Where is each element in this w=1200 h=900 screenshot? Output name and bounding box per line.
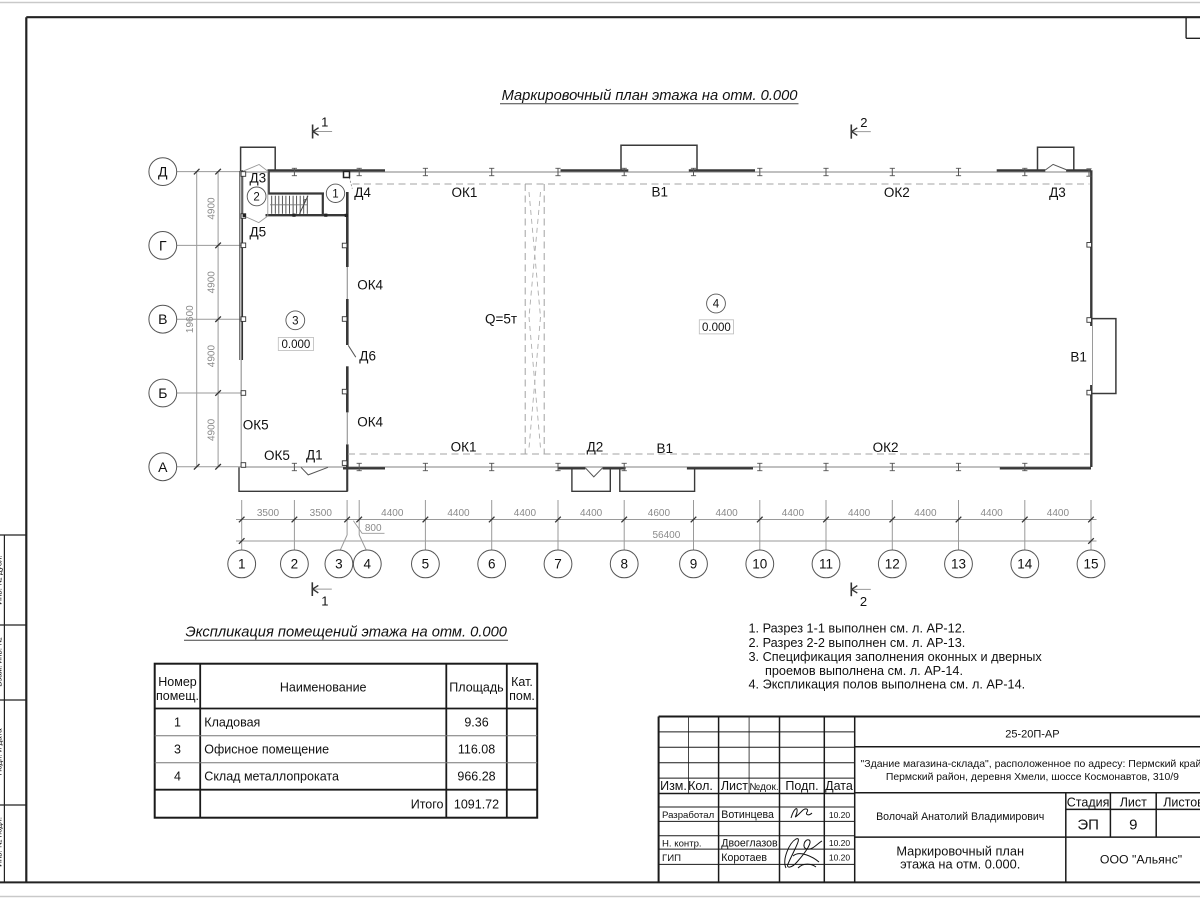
svg-text:Экспликация помещений этажа на: Экспликация помещений этажа на отм. 0.00… [185,625,507,641]
svg-text:ОК2: ОК2 [873,440,899,455]
svg-text:3: 3 [335,557,343,572]
svg-text:Дата: Дата [825,779,853,793]
svg-text:4: 4 [713,299,720,311]
svg-text:проемов выполнена см. л. АР-14: проемов выполнена см. л. АР-14. [765,664,963,678]
svg-text:Вотинцева: Вотинцева [721,809,774,821]
svg-text:Д6: Д6 [359,349,376,364]
svg-text:4600: 4600 [648,508,671,519]
svg-text:10.20: 10.20 [829,853,851,863]
svg-text:ОК1: ОК1 [451,185,477,200]
svg-text:В1: В1 [652,185,669,200]
svg-text:Двоеглазов: Двоеглазов [721,838,778,850]
svg-text:4400: 4400 [381,508,404,519]
svg-text:4400: 4400 [1047,508,1070,519]
svg-text:ОК5: ОК5 [264,448,290,463]
svg-text:1091.72: 1091.72 [454,798,499,812]
svg-text:В1: В1 [1070,350,1087,365]
svg-text:4400: 4400 [914,508,937,519]
svg-text:2: 2 [291,557,299,572]
svg-text:Д4: Д4 [354,185,371,200]
svg-text:помещ.: помещ. [156,689,199,703]
svg-text:4900: 4900 [207,345,218,368]
svg-text:25-20П-АР: 25-20П-АР [1005,729,1059,741]
svg-text:2. Разрез 2-2 выполнен см. л.: 2. Разрез 2-2 выполнен см. л. АР-13. [749,636,966,650]
svg-text:В: В [158,311,167,327]
svg-text:4900: 4900 [207,197,218,220]
svg-text:Кол.: Кол. [688,779,713,793]
svg-text:9: 9 [690,557,698,572]
svg-text:1: 1 [238,557,246,572]
svg-text:3. Спецификация заполнения око: 3. Спецификация заполнения оконных и две… [749,650,1043,664]
svg-text:Д3: Д3 [1049,185,1066,200]
svg-text:4400: 4400 [580,508,603,519]
svg-text:Маркировочный план этажа на от: Маркировочный план этажа на отм. 0.000 [502,88,799,104]
svg-text:6: 6 [488,557,496,572]
svg-text:пом.: пом. [509,689,535,703]
svg-text:Кат.: Кат. [511,675,533,689]
svg-text:1: 1 [174,716,181,730]
svg-text:ОК5: ОК5 [243,418,269,433]
svg-text:2: 2 [253,192,259,204]
svg-text:4900: 4900 [207,418,218,441]
svg-text:4400: 4400 [514,508,537,519]
svg-text:Итого: Итого [411,798,444,812]
svg-text:А: А [158,459,168,475]
svg-text:Волочай Анатолий Владимирович: Волочай Анатолий Владимирович [876,811,1044,823]
svg-text:4: 4 [364,557,372,572]
svg-text:Подп. и дата: Подп. и дата [0,728,3,776]
svg-text:ОК1: ОК1 [451,440,477,455]
svg-text:4400: 4400 [715,508,738,519]
svg-text:Г: Г [159,237,167,253]
svg-text:Q=5т: Q=5т [485,312,517,327]
svg-text:2: 2 [860,115,867,130]
svg-text:7: 7 [554,557,562,572]
svg-text:Н. контр.: Н. контр. [662,838,702,849]
svg-text:56400: 56400 [652,530,680,541]
svg-text:ОК2: ОК2 [884,185,910,200]
svg-text:1: 1 [321,115,328,130]
svg-text:Д5: Д5 [249,225,266,240]
svg-text:3500: 3500 [310,508,333,519]
svg-text:1. Разрез 1-1 выполнен см. л.: 1. Разрез 1-1 выполнен см. л. АР-12. [749,622,966,636]
svg-text:ЭП: ЭП [1077,816,1099,833]
svg-text:Склад металлопроката: Склад металлопроката [204,770,339,784]
svg-text:Стадия: Стадия [1067,796,1110,810]
svg-text:12: 12 [885,557,900,572]
svg-text:Кладовая: Кладовая [204,716,260,730]
svg-text:Наименование: Наименование [280,681,367,695]
svg-text:4400: 4400 [980,508,1003,519]
svg-text:4400: 4400 [848,508,871,519]
svg-text:Изм.: Изм. [660,779,687,793]
svg-text:Д1: Д1 [306,448,323,463]
svg-text:Лист: Лист [1120,796,1147,810]
svg-text:4400: 4400 [447,508,470,519]
svg-text:ООО "Альянс": ООО "Альянс" [1100,853,1182,867]
svg-text:800: 800 [365,523,382,534]
svg-text:4. Экспликация полов выполнена: 4. Экспликация полов выполнена см. л. АР… [749,678,1026,692]
svg-text:5: 5 [422,557,430,572]
svg-text:Коротаев: Коротаев [721,852,767,864]
svg-text:Номер: Номер [158,675,197,689]
svg-text:Лист: Лист [721,779,748,793]
svg-text:ОК4: ОК4 [357,278,383,293]
svg-text:Подп.: Подп. [785,779,818,793]
svg-text:В1: В1 [657,441,674,456]
svg-text:Пермский район, деревня Хмели,: Пермский район, деревня Хмели, шоссе Кос… [886,772,1179,783]
svg-text:1: 1 [321,594,328,609]
svg-text:Д2: Д2 [587,440,604,455]
svg-text:116.08: 116.08 [458,743,495,757]
svg-text:1: 1 [332,188,338,200]
svg-text:0.000: 0.000 [282,339,311,351]
svg-text:3: 3 [174,743,181,757]
svg-text:3: 3 [292,315,298,327]
svg-text:19600: 19600 [185,305,196,333]
svg-text:Б: Б [158,385,167,401]
svg-text:9: 9 [1129,816,1137,833]
svg-text:Разработал: Разработал [662,810,714,821]
svg-text:Инв. № дубл.: Инв. № дубл. [0,555,3,605]
svg-text:4: 4 [174,770,181,784]
svg-text:ГИП: ГИП [662,853,681,864]
svg-text:ОК4: ОК4 [357,415,383,430]
svg-text:11: 11 [819,557,833,572]
svg-text:9.36: 9.36 [464,716,488,730]
svg-text:Офисное помещение: Офисное помещение [204,743,329,757]
svg-text:Листов: Листов [1163,796,1200,810]
svg-text:3500: 3500 [257,508,280,519]
svg-text:Д3: Д3 [249,171,266,186]
svg-text:0.000: 0.000 [702,322,731,334]
svg-text:№док.: №док. [749,782,778,793]
svg-text:15: 15 [1083,557,1098,572]
svg-text:966.28: 966.28 [457,770,495,784]
svg-text:13: 13 [951,557,966,572]
svg-text:8: 8 [620,557,628,572]
svg-text:Д: Д [158,164,168,180]
svg-text:4900: 4900 [207,271,218,294]
svg-text:этажа на отм. 0.000.: этажа на отм. 0.000. [900,857,1020,872]
svg-text:Инв. № подл.: Инв. № подл. [0,817,3,867]
svg-text:14: 14 [1017,557,1033,572]
svg-text:10.20: 10.20 [829,810,851,820]
svg-text:"Здание магазина-склада", расп: "Здание магазина-склада", расположенное … [861,758,1200,770]
svg-text:Площадь: Площадь [449,681,503,695]
svg-text:10.20: 10.20 [829,838,851,848]
svg-text:10: 10 [752,557,767,572]
svg-text:Взам. инв. №: Взам. инв. № [0,637,3,687]
svg-text:2: 2 [860,594,867,609]
svg-text:4400: 4400 [782,508,805,519]
